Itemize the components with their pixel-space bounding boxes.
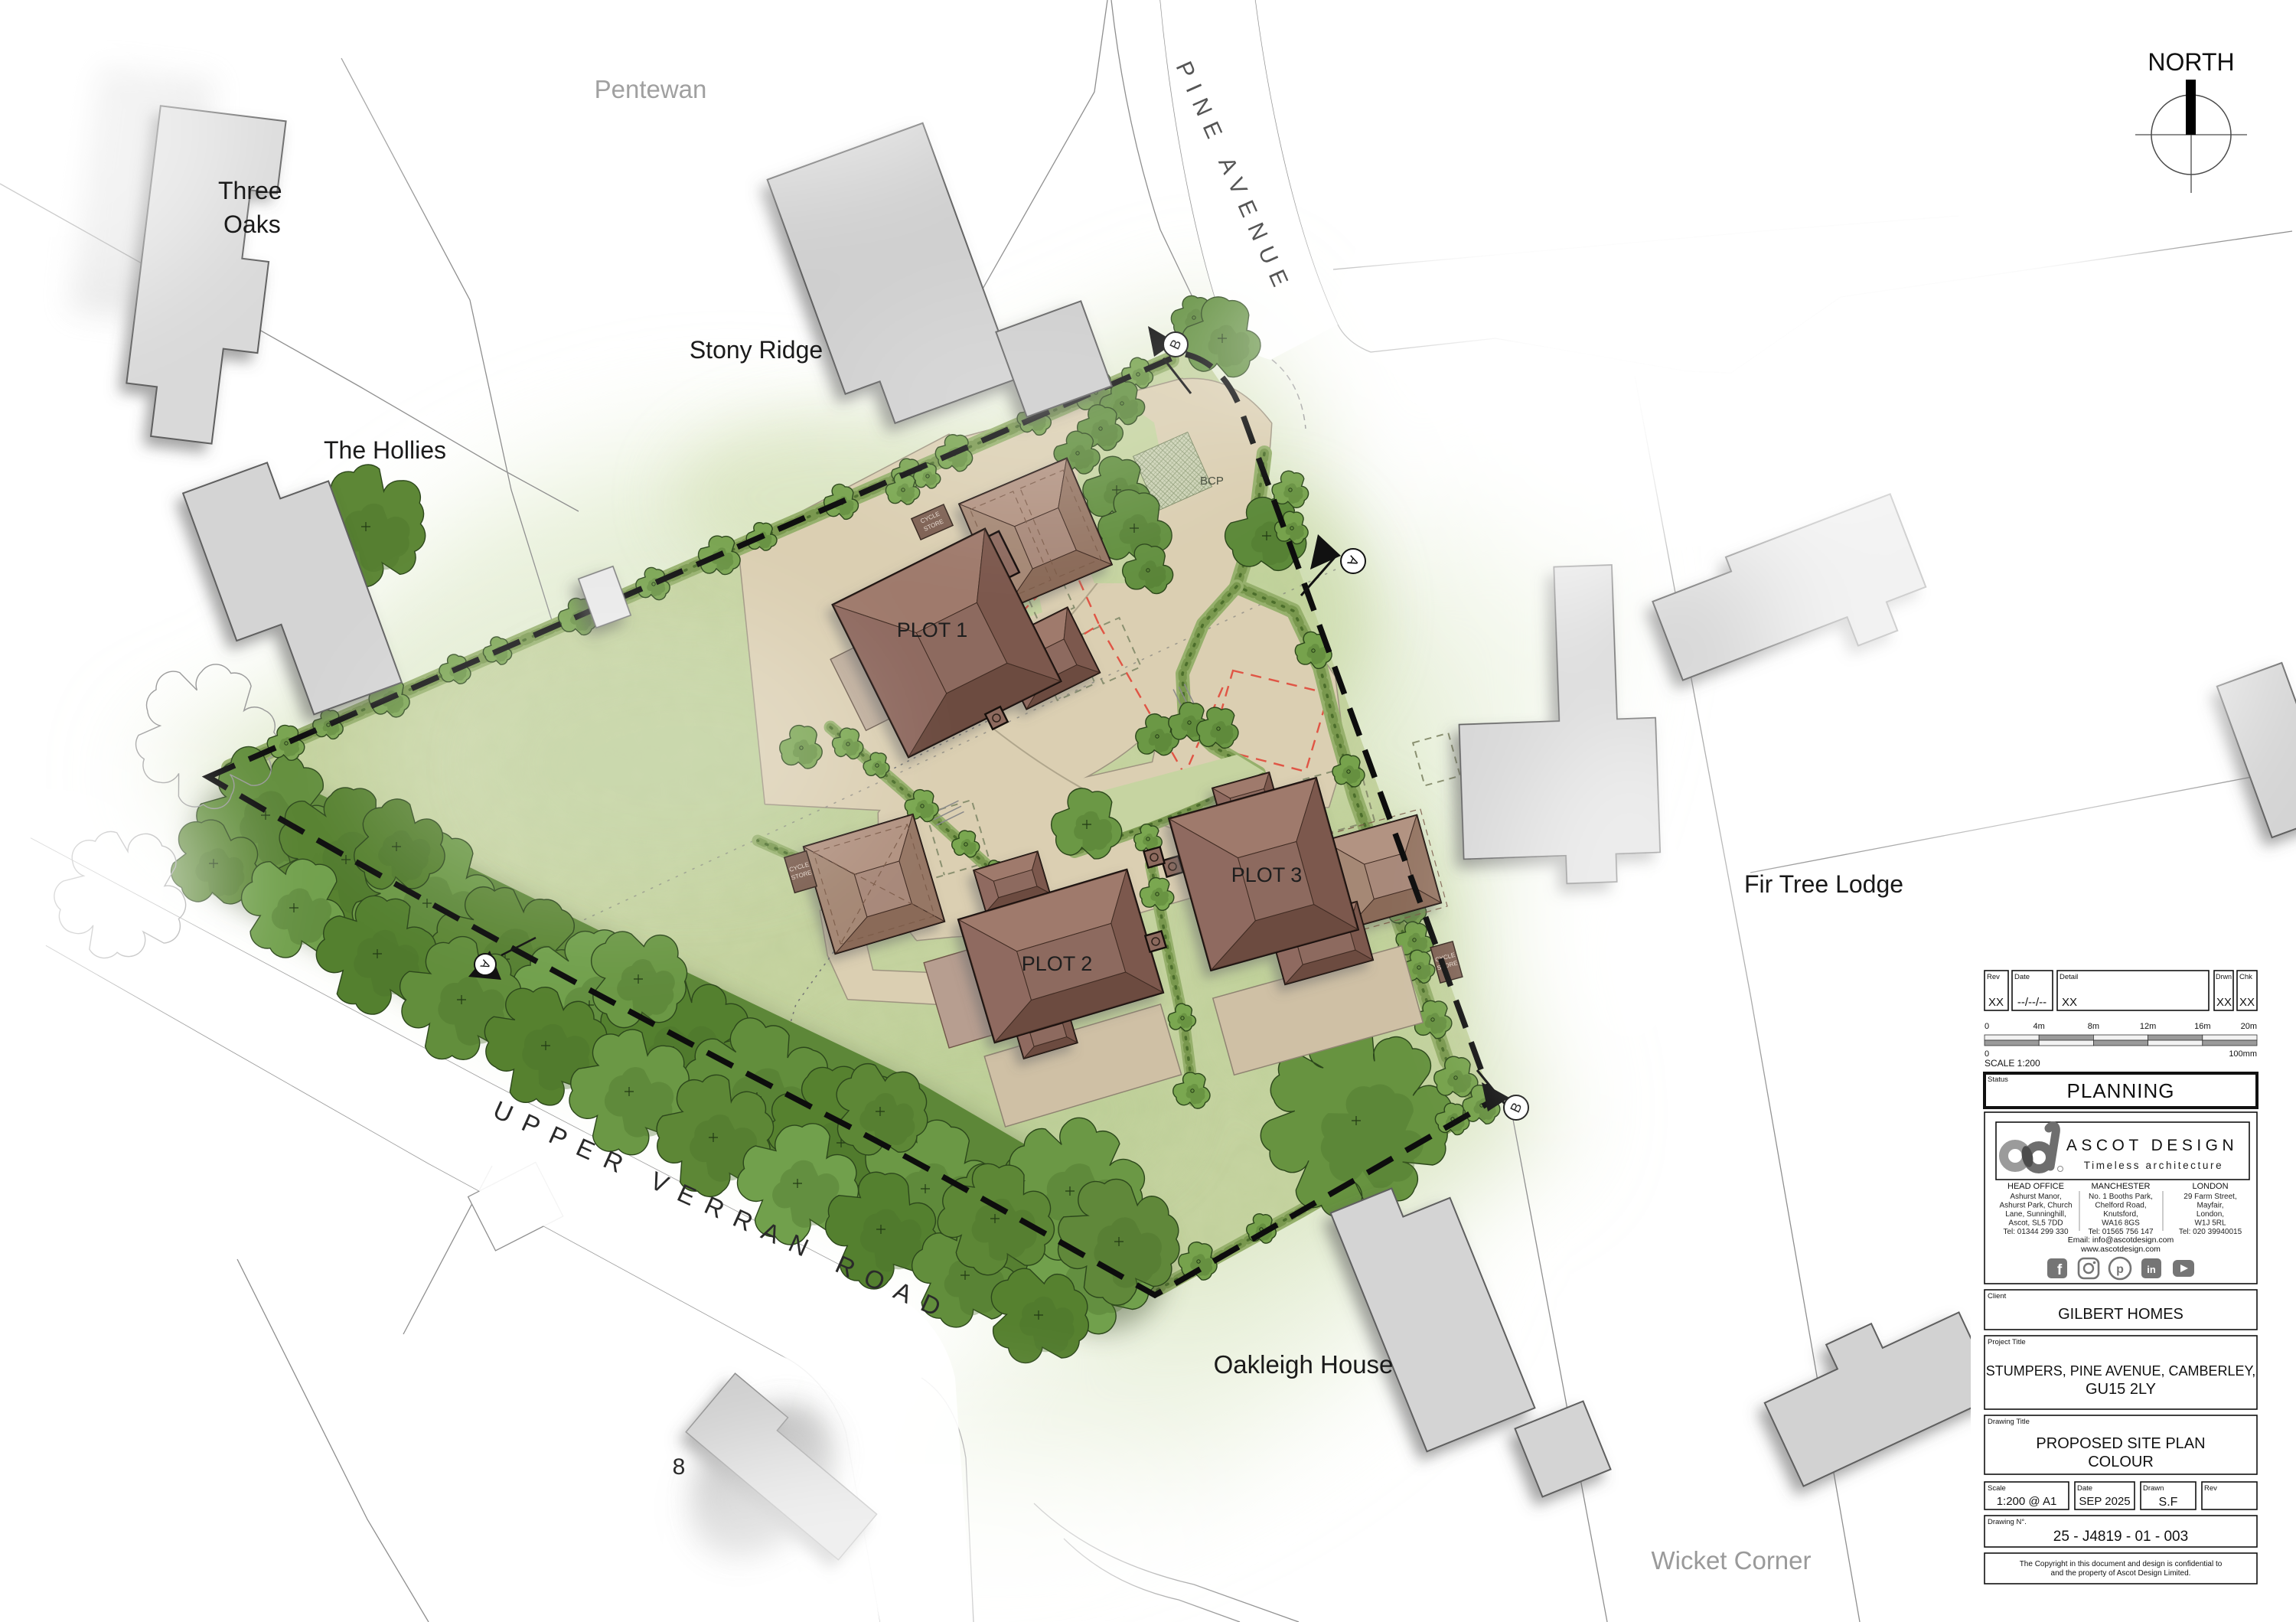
svg-text:ASCOT DESIGN: ASCOT DESIGN <box>2066 1137 2238 1154</box>
svg-text:No. 1 Booths Park,: No. 1 Booths Park, <box>2089 1193 2153 1201</box>
svg-text:25 - J4819 - 01 - 003: 25 - J4819 - 01 - 003 <box>2053 1529 2188 1545</box>
svg-text:--/--/--: --/--/-- <box>2017 996 2047 1009</box>
svg-text:Stony Ridge: Stony Ridge <box>690 336 823 364</box>
svg-text:XX: XX <box>2239 996 2255 1009</box>
svg-text:100mm: 100mm <box>2229 1049 2257 1059</box>
svg-text:8m: 8m <box>2088 1022 2099 1031</box>
svg-text:29 Farm Street,: 29 Farm Street, <box>2183 1193 2236 1201</box>
svg-text:Tel: 01344 299 330: Tel: 01344 299 330 <box>2003 1228 2069 1236</box>
svg-text:12m: 12m <box>2140 1022 2156 1031</box>
svg-text:Detail: Detail <box>2060 973 2078 981</box>
svg-text:Three: Three <box>218 177 282 204</box>
svg-text:Date: Date <box>2014 973 2030 981</box>
svg-text:NORTH: NORTH <box>2148 48 2234 76</box>
svg-text:WA16 8GS: WA16 8GS <box>2102 1219 2140 1228</box>
svg-text:The Copyright in this document: The Copyright in this document and desig… <box>2020 1560 2223 1568</box>
svg-text:Client: Client <box>1988 1292 2007 1301</box>
svg-text:The Hollies: The Hollies <box>324 436 446 464</box>
svg-text:London,: London, <box>2197 1210 2224 1219</box>
svg-text:www.ascotdesign.com: www.ascotdesign.com <box>2080 1245 2161 1254</box>
svg-text:Chelford Road,: Chelford Road, <box>2095 1202 2146 1210</box>
svg-text:Wicket Corner: Wicket Corner <box>1651 1546 1811 1575</box>
svg-text:Status: Status <box>1988 1075 2008 1084</box>
svg-text:in: in <box>2147 1264 2156 1275</box>
svg-text:MANCHESTER: MANCHESTER <box>2091 1182 2150 1191</box>
svg-text:HEAD OFFICE: HEAD OFFICE <box>2007 1182 2064 1191</box>
svg-text:Chk: Chk <box>2239 973 2252 981</box>
svg-text:Drawing N°.: Drawing N°. <box>1988 1518 2027 1526</box>
svg-text:Oakleigh House: Oakleigh House <box>1214 1350 1394 1379</box>
svg-text:W1J 5RL: W1J 5RL <box>2194 1219 2226 1228</box>
svg-text:Mayfair,: Mayfair, <box>2197 1202 2223 1210</box>
svg-text:Knutsford,: Knutsford, <box>2103 1210 2138 1219</box>
svg-text:1:200 @ A1: 1:200 @ A1 <box>1997 1495 2057 1508</box>
svg-text:20m: 20m <box>2241 1022 2257 1031</box>
svg-text:PLOT 2: PLOT 2 <box>1022 952 1093 975</box>
svg-text:Ashurst Manor,: Ashurst Manor, <box>2010 1193 2061 1201</box>
svg-text:GU15 2LY: GU15 2LY <box>2086 1381 2156 1398</box>
svg-text:Oaks: Oaks <box>223 211 281 238</box>
svg-text:Timeless architecture: Timeless architecture <box>2084 1160 2223 1171</box>
svg-text:Ashurst Park, Church: Ashurst Park, Church <box>1999 1202 2072 1210</box>
svg-text:PROPOSED SITE PLAN: PROPOSED SITE PLAN <box>2036 1435 2205 1452</box>
svg-text:Ascot, SL5 7DD: Ascot, SL5 7DD <box>2008 1219 2063 1228</box>
svg-text:8: 8 <box>673 1454 686 1480</box>
svg-text:16m: 16m <box>2194 1022 2210 1031</box>
svg-text:PLOT 1: PLOT 1 <box>897 618 968 641</box>
svg-text:0: 0 <box>1985 1022 1989 1031</box>
svg-text:SCALE 1:200: SCALE 1:200 <box>1985 1058 2040 1069</box>
svg-text:Rev: Rev <box>1987 973 2000 981</box>
svg-text:Lane, Sunninghill,: Lane, Sunninghill, <box>2005 1210 2066 1219</box>
svg-text:Drawing Title: Drawing Title <box>1988 1418 2030 1426</box>
svg-text:PLOT 3: PLOT 3 <box>1231 863 1303 886</box>
svg-text:Project Title: Project Title <box>1988 1338 2026 1346</box>
svg-text:LONDON: LONDON <box>2192 1182 2228 1191</box>
svg-text:XX: XX <box>1988 996 2004 1009</box>
svg-text:Date: Date <box>2077 1484 2092 1493</box>
svg-text:XX: XX <box>2216 996 2232 1009</box>
svg-text:Pentewan: Pentewan <box>595 75 707 103</box>
svg-text:BCP: BCP <box>1200 475 1224 488</box>
svg-text:Tel: 020 39940015: Tel: 020 39940015 <box>2179 1228 2242 1236</box>
svg-text:S.F: S.F <box>2159 1496 2178 1509</box>
svg-text:Drawn: Drawn <box>2143 1484 2164 1493</box>
svg-text:XX: XX <box>2062 996 2077 1009</box>
svg-text:COLOUR: COLOUR <box>2088 1454 2154 1470</box>
svg-text:SEP 2025: SEP 2025 <box>2079 1495 2130 1508</box>
svg-text:Drwn: Drwn <box>2216 973 2232 981</box>
svg-text:Rev: Rev <box>2204 1484 2217 1493</box>
svg-text:f: f <box>2057 1262 2063 1278</box>
svg-text:PLANNING: PLANNING <box>2067 1079 2175 1102</box>
svg-text:Email: info@ascotdesign.com: Email: info@ascotdesign.com <box>2068 1235 2174 1245</box>
svg-text:STUMPERS, PINE AVENUE, CAMBERL: STUMPERS, PINE AVENUE, CAMBERLEY, <box>1986 1363 2255 1379</box>
svg-text:Fir Tree Lodge: Fir Tree Lodge <box>1744 870 1903 898</box>
svg-text:4m: 4m <box>2033 1022 2045 1031</box>
svg-text:p: p <box>2116 1263 2124 1276</box>
svg-text:and the property of Ascot Desi: and the property of Ascot Design Limited… <box>2051 1569 2191 1578</box>
svg-text:Scale: Scale <box>1988 1484 2006 1493</box>
svg-text:GILBERT HOMES: GILBERT HOMES <box>2058 1306 2183 1323</box>
